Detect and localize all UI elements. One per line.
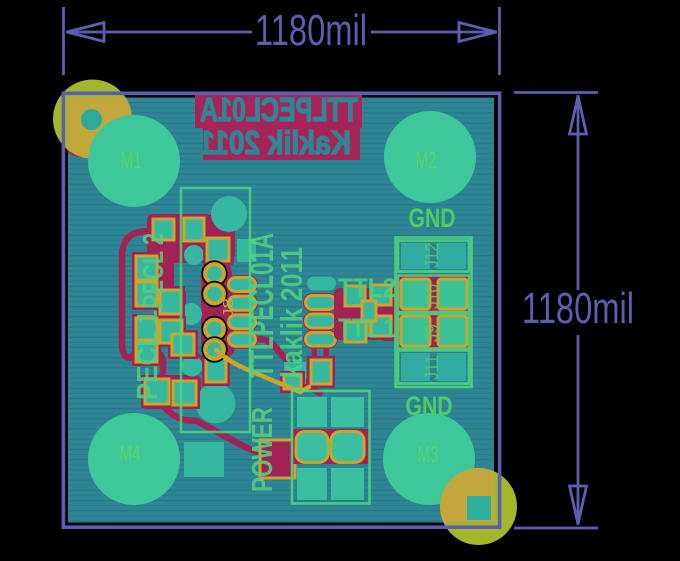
svg-text:TTL2: TTL2 xyxy=(338,273,396,303)
svg-text:J10: J10 xyxy=(422,284,442,309)
svg-text:J3: J3 xyxy=(323,442,339,457)
svg-text:Kaklik 2011: Kaklik 2011 xyxy=(199,124,351,161)
svg-text:J12: J12 xyxy=(422,243,442,268)
svg-text:PECL 2: PECL 2 xyxy=(138,233,170,309)
svg-text:TTLPECL01A: TTLPECL01A xyxy=(200,91,358,128)
svg-text:1180mil: 1180mil xyxy=(255,6,367,55)
svg-text:M2: M2 xyxy=(416,147,437,173)
svg-text:GND: GND xyxy=(406,391,453,421)
svg-text:M3: M3 xyxy=(418,441,439,467)
svg-text:M4: M4 xyxy=(120,440,141,466)
svg-text:J9: J9 xyxy=(422,324,442,342)
svg-text:J8: J8 xyxy=(220,298,237,318)
svg-text:TTL 1: TTL 1 xyxy=(338,313,396,343)
svg-text:PECL 1: PECL 1 xyxy=(132,310,164,400)
svg-text:1180mil: 1180mil xyxy=(522,284,634,333)
svg-text:GND: GND xyxy=(409,203,456,233)
svg-text:kaklik 2011: kaklik 2011 xyxy=(274,247,309,378)
svg-text:J11: J11 xyxy=(422,355,442,380)
svg-text:POWER: POWER xyxy=(247,407,279,492)
svg-text:M1: M1 xyxy=(121,147,142,173)
